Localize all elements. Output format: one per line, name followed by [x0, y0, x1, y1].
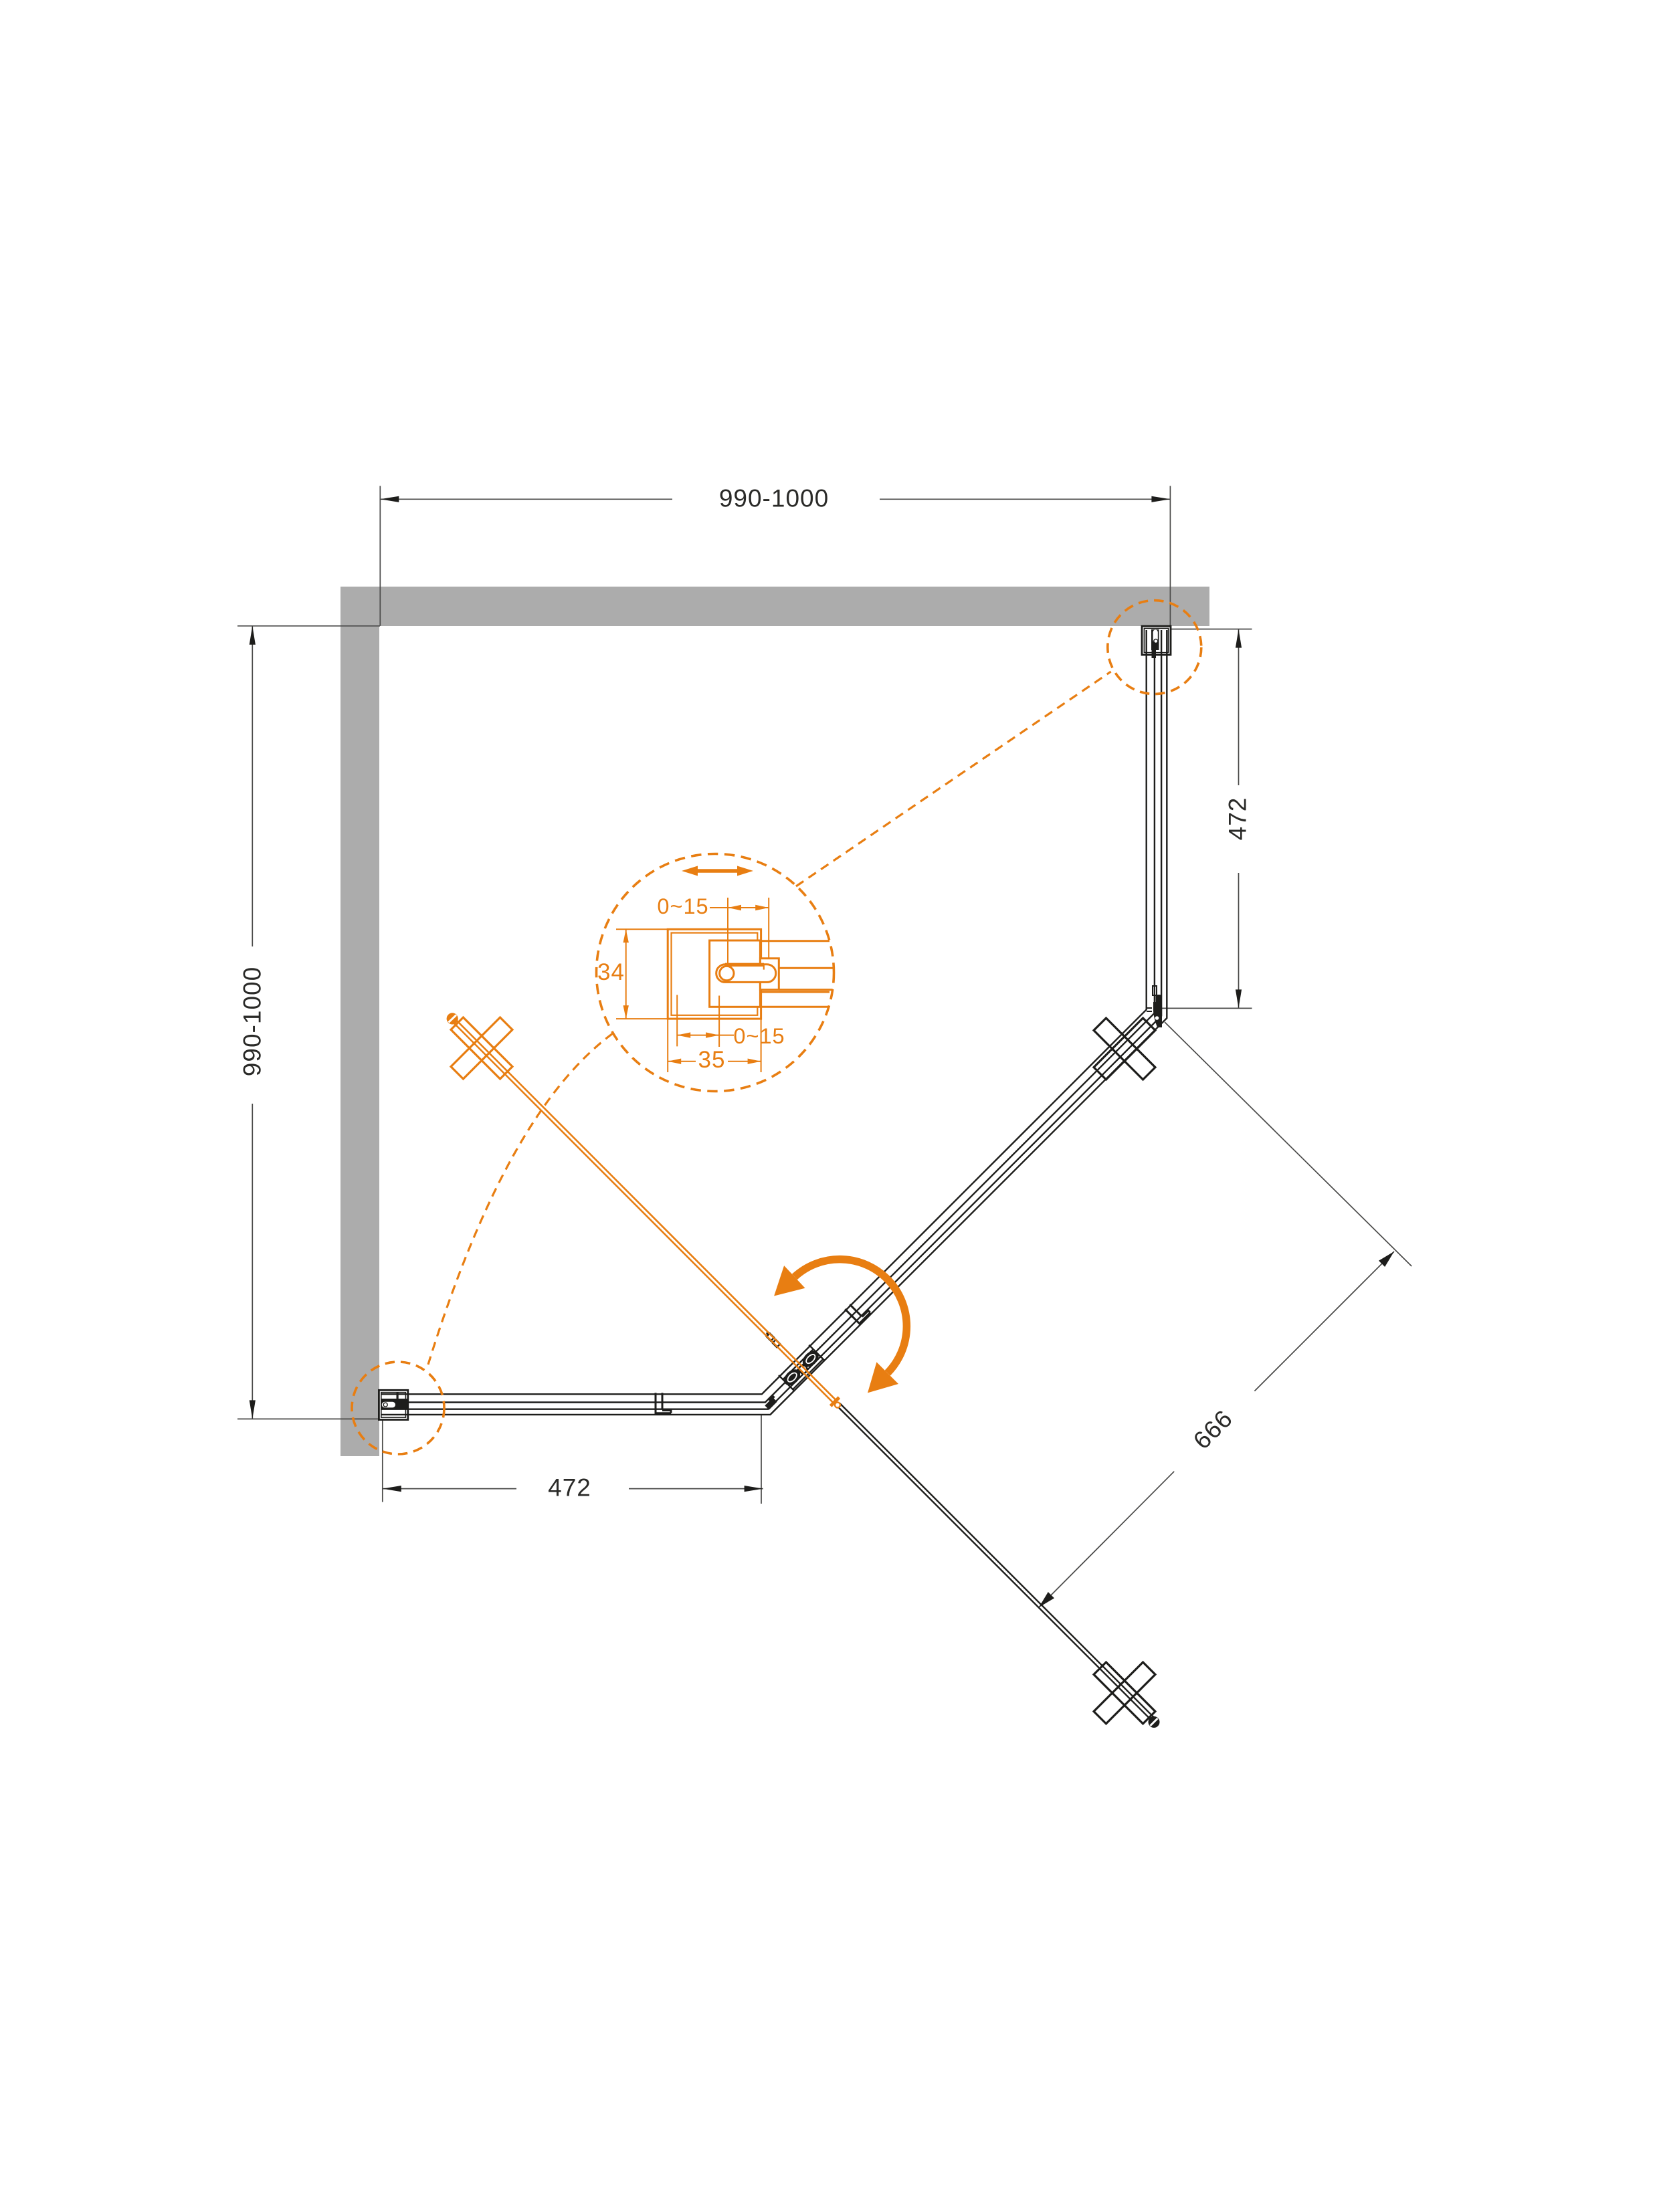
- svg-text:0~15: 0~15: [657, 894, 708, 918]
- svg-text:0~15: 0~15: [733, 1024, 785, 1048]
- svg-text:472: 472: [1224, 797, 1252, 841]
- svg-text:990-1000: 990-1000: [719, 485, 829, 512]
- svg-text:35: 35: [698, 1047, 726, 1073]
- svg-text:472: 472: [548, 1474, 591, 1502]
- svg-text:990-1000: 990-1000: [239, 967, 266, 1076]
- svg-text:34: 34: [597, 959, 625, 985]
